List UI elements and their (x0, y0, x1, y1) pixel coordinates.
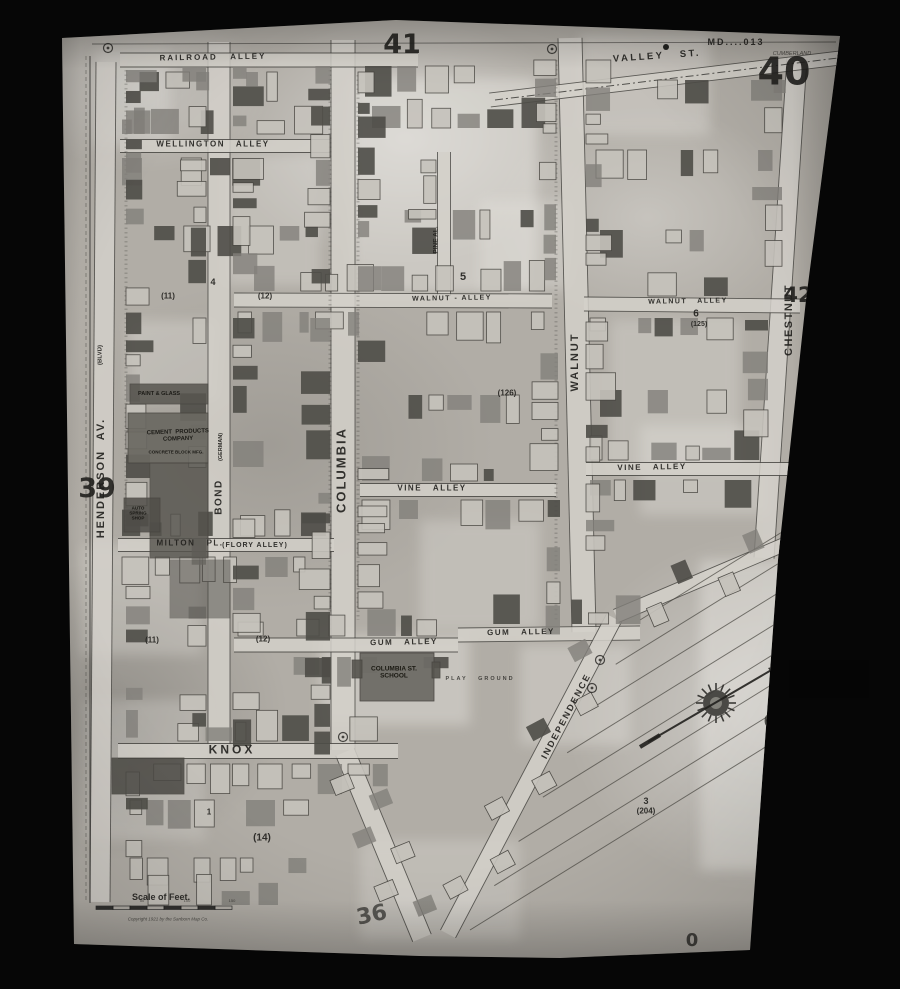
street-flory-alley: (FLORY ALLEY) (222, 542, 288, 550)
street-knox: KNOX (209, 743, 256, 756)
block-number-4: 4 (210, 277, 215, 287)
street-henderson-av: HENDERSON AV. (95, 418, 107, 539)
street-railroad-alley: RAILROAD ALLEY (160, 53, 267, 64)
map-drawing (0, 0, 900, 989)
catalog-number: MD....013 (707, 37, 764, 47)
street-gum-alley-right: GUM ALLEY (487, 628, 555, 638)
block-number-0-east: 0 (764, 712, 777, 732)
scanned-sanborn-map-photo: MD....013CUMBERLAND4041423936RAILROAD AL… (0, 0, 900, 989)
street-high: HIGH (763, 857, 774, 876)
sheet-number-41: 41 (383, 30, 421, 60)
block-number-11-lower: (11) (145, 637, 159, 646)
block-number-5: 5 (460, 271, 466, 283)
street-gum-alley-left: GUM ALLEY (370, 638, 438, 648)
block-number-11-upper: (11) (161, 293, 175, 302)
block-number-126: (126) (498, 390, 517, 399)
label-concrete-block-mfg: CONCRETE BLOCK MFG. (149, 449, 204, 454)
street-bond-german: (GERMAN) (218, 433, 224, 461)
street-vine-alley-right: VINE ALLEY (617, 463, 686, 473)
block-number-12-upper: (12) (258, 293, 272, 302)
block-number-204: (204) (637, 808, 656, 817)
label-play-ground: PLAY GROUND (445, 676, 514, 682)
copyright-line: Copyright 1921 by the Sanborn Map Co. (128, 916, 209, 921)
scale-tick-100: 100 (184, 899, 191, 903)
street-columbia: COLUMBIA (335, 427, 350, 513)
block-number-3: 3 (643, 796, 648, 806)
street-chestnut: CHESTNUT (783, 284, 795, 356)
scale-tick-150: 150 (229, 899, 236, 903)
street-pine-alley: PINE AL. (432, 226, 439, 253)
street-walnut-alley-right: WALNUT ALLEY (648, 297, 728, 306)
block-number-0-south: 0 (686, 931, 699, 951)
street-vine-alley-left: VINE ALLEY (397, 485, 466, 494)
street-walnut: WALNUT (569, 332, 581, 391)
label-auto-spring-shop: AUTO SPRING SHOP (129, 505, 146, 520)
street-henderson-blvd: (BLVD) (98, 345, 105, 365)
map-sheet-area: MD....013CUMBERLAND4041423936RAILROAD AL… (0, 0, 900, 989)
scale-tick-50: 50 (140, 899, 144, 903)
scanner-tab-artifact (789, 660, 869, 698)
street-walnut-alley-left: WALNUT - ALLEY (412, 294, 492, 303)
label-columbia-st-school: COLUMBIA ST. SCHOOL (371, 666, 417, 681)
street-milton-pl: MILTON PL. (156, 540, 223, 549)
block-number-14: (14) (253, 832, 271, 843)
street-wellington-alley: WELLINGTON ALLEY (156, 141, 269, 150)
street-hill: HILL (762, 784, 773, 801)
block-number-12-lower: (12) (256, 636, 270, 645)
block-number-125: (125) (691, 321, 707, 329)
street-bond: BOND (213, 479, 224, 514)
block-number-1: 1 (207, 809, 211, 818)
label-paint-glass: PAINT & GLASS (138, 391, 180, 397)
label-cement-products: CEMENT PRODUCTS COMPANY (147, 428, 210, 444)
block-number-6: 6 (693, 308, 699, 319)
sheet-number-40: 40 (758, 51, 811, 94)
